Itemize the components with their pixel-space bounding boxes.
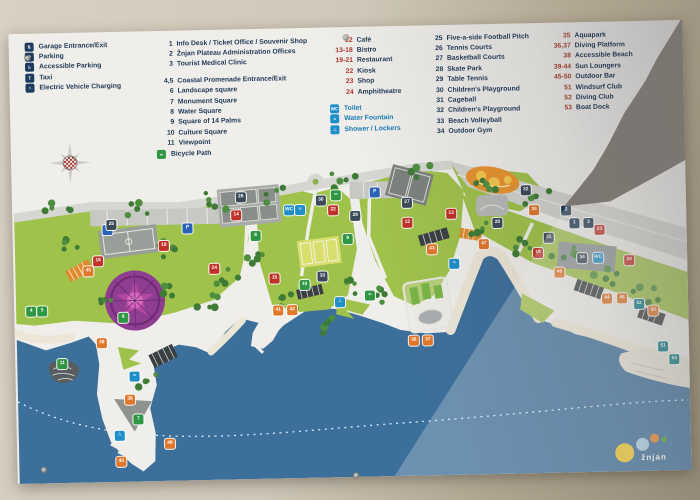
map-marker: 43 (427, 244, 437, 254)
legend-label: Water Fountain (344, 114, 393, 122)
map-marker: 39 (125, 395, 135, 405)
map-marker: 1 (569, 218, 579, 228)
map-marker: 35 (529, 205, 539, 215)
legend-number: 33 (426, 118, 444, 125)
legend-label: Accessible Beach (575, 52, 633, 60)
map-marker: ≈ (295, 205, 305, 215)
map-marker: 22 (328, 205, 338, 215)
legend-number: 11 (157, 140, 175, 147)
legend-label: Monument Square (178, 97, 237, 105)
map-marker: 38 (97, 338, 107, 348)
map-marker: 31 (544, 233, 554, 243)
map-marker: 25 (106, 220, 116, 230)
map-marker: 51 (658, 341, 668, 351)
map-marker: 49 (554, 268, 564, 278)
legend-item: 3Tourist Medical Clinic (155, 57, 308, 71)
legend-number: 28 (425, 66, 443, 73)
legend-label: Beach Volleyball (448, 117, 502, 125)
garage-icon: ⇅ (25, 42, 34, 51)
legend-column-beach: 35Aquapark36,37Diving Platform38Accessib… (542, 29, 634, 114)
legend-label: Kiosk (357, 67, 376, 74)
taxi-icon: T (25, 73, 34, 82)
map-marker: 37 (423, 335, 433, 345)
map-marker: 41 (273, 305, 283, 315)
map-marker: ∞ (331, 190, 341, 200)
map-marker: 3 (583, 218, 593, 228)
legend-label: Tourist Medical Clinic (177, 60, 247, 68)
legend-label: Café (356, 36, 371, 43)
legend-number: 36,37 (543, 42, 571, 50)
map-marker: 45 (83, 266, 93, 276)
map-marker: 12 (402, 218, 412, 228)
legend-label: Cageball (448, 96, 476, 104)
water-fountain-icon: ≈ (330, 115, 339, 124)
legend-label: Electric Vehicle Charging (39, 83, 121, 92)
map-marker: P (370, 187, 380, 197)
map-marker: 33 (317, 271, 327, 281)
map-marker: 53 (669, 354, 679, 364)
toilet-icon: WC (330, 104, 339, 113)
legend-label: Skate Park (447, 65, 482, 73)
screw (354, 473, 359, 478)
logo-dot-blue (669, 441, 673, 445)
legend-item: ∴Shower / Lockers (330, 123, 402, 135)
map-marker: 7 (133, 414, 143, 424)
logo-dot-yellow (615, 443, 634, 462)
legend-number: 3 (155, 61, 173, 68)
map-marker: ∴ (115, 431, 125, 441)
legend-number: 23 (329, 78, 353, 86)
legend-label: Windsurf Club (576, 83, 623, 91)
legend-number: 10 (156, 129, 174, 136)
legend-number: 27 (425, 55, 443, 62)
map-marker: 16 (93, 256, 103, 266)
legend-number: 4,5 (155, 78, 173, 85)
map-marker: 47 (479, 239, 489, 249)
logo-dot-lightblue (636, 438, 649, 451)
legend-number: 6 (156, 88, 174, 95)
legend-label: Taxi (39, 74, 52, 81)
map-marker: 36 (409, 336, 419, 346)
legend-label: Shower / Lockers (344, 125, 400, 133)
legend-number: 35 (542, 32, 570, 40)
map-marker: 32 (521, 185, 531, 195)
legend-label: Shop (357, 78, 374, 85)
legend-number: 12 (328, 37, 352, 45)
beach-volleyball-courts (297, 236, 342, 268)
legend-label: Children's Playground (448, 85, 520, 94)
legend-item: 24Amphitheatre (330, 86, 402, 98)
legend-label: Diving Club (576, 93, 614, 101)
legend-label: Landscape square (178, 87, 238, 95)
map-marker: 42 (287, 305, 297, 315)
legend-column-facilities: ⇅Garage Entrance/ExitPParking♿Accessible… (25, 40, 122, 94)
skate-park (476, 195, 508, 217)
map-marker: 20 (624, 255, 634, 265)
legend-column-food-amenities: 12Café13-18Bistro19-21Restaurant22Kiosk2… (328, 34, 402, 135)
legend-label: Square of 14 Palms (178, 118, 241, 126)
map-marker: 2 (561, 205, 571, 215)
legend-number: 32 (426, 107, 444, 114)
map-marker: 6 (118, 313, 128, 323)
map-marker: 19 (159, 241, 169, 251)
map-marker: 44 (602, 294, 612, 304)
znjan-logo: žnjan (615, 431, 696, 469)
bay-structures (403, 277, 454, 333)
legend-label: Sun Loungers (575, 62, 621, 70)
map-marker: ∴ (335, 297, 345, 307)
screw (343, 35, 348, 40)
legend-label: Children's Playground (448, 106, 520, 115)
shower-lockers-icon: ∴ (330, 125, 339, 134)
legend-label: Bistro (357, 46, 377, 53)
legend-number: 45-50 (543, 74, 571, 82)
map-marker: 29 (350, 211, 360, 221)
map-marker: 24 (209, 264, 219, 274)
legend-number: 2 (155, 51, 173, 58)
legend-label: Basketball Courts (447, 54, 505, 62)
legend-number: 9 (156, 119, 174, 126)
legend-label: Tennis Courts (447, 44, 492, 52)
legend-number: 24 (330, 89, 354, 97)
map-marker: 50 (648, 306, 658, 316)
legend-number: 25 (424, 35, 442, 42)
map-marker: 23 (594, 225, 604, 235)
map-marker: P (182, 223, 192, 233)
map-marker: 10 (300, 280, 310, 290)
legend-label: Bicycle Path (171, 149, 212, 157)
legend-item: 53Boat Dock (544, 102, 634, 114)
legend-label: Outdoor Gym (448, 127, 492, 135)
legend-number: 22 (329, 68, 353, 76)
map-marker: 8 (251, 231, 261, 241)
legend-number: 26 (425, 45, 443, 52)
ev-charging-icon: ⚡ (25, 84, 34, 93)
map-marker: 46 (617, 293, 627, 303)
map-marker: WC (284, 205, 294, 215)
legend-number: 13-18 (329, 47, 353, 55)
legend-number: 31 (426, 97, 444, 104)
map-marker: ≈ (129, 371, 139, 381)
map-marker: 27 (402, 198, 412, 208)
legend-item: ⚡Electric Vehicle Charging (25, 81, 121, 93)
legend-label: Water Square (178, 108, 222, 116)
legend-number: 29 (425, 76, 443, 83)
map-marker: 48 (165, 439, 175, 449)
legend-number: 30 (426, 87, 444, 94)
map-marker: 18 (533, 248, 543, 258)
park-information-sign: ⇅Garage Entrance/ExitPParking♿Accessible… (8, 20, 691, 484)
legend-number: 8 (156, 109, 174, 116)
legend-label: Diving Platform (575, 41, 625, 49)
legend-item: 34Outdoor Gym (426, 125, 531, 138)
map-marker: 26 (236, 192, 246, 202)
map-marker: 34 (577, 253, 587, 263)
legend-label: Table Tennis (447, 75, 488, 83)
map-marker: 30 (316, 195, 326, 205)
map-marker: 14 (231, 210, 241, 220)
map-marker: ∞ (365, 290, 375, 300)
legend-label: Viewpoint (179, 139, 211, 147)
screw (41, 467, 46, 472)
compass-rose (49, 141, 92, 184)
legend-column-places: 1Info Desk / Ticket Office / Souvenir Sh… (154, 36, 309, 159)
legend-label: Parking (39, 53, 64, 61)
legend-label: Outdoor Bar (575, 73, 615, 81)
legend-number: 1 (155, 40, 173, 47)
legend-number: 52 (544, 94, 572, 102)
legend-label: Amphitheatre (358, 88, 402, 96)
map-marker: 52 (634, 299, 644, 309)
screw (25, 56, 30, 61)
map-marker: 15 (269, 273, 279, 283)
map-marker: WC (593, 253, 603, 263)
legend-number: 53 (544, 105, 572, 113)
map-marker: 13 (446, 209, 456, 219)
logo-text: žnjan (641, 452, 667, 462)
map-marker: 4 (26, 307, 36, 317)
legend-label: Five-a-side Football Pitch (446, 33, 528, 42)
legend-number: 19-21 (329, 57, 353, 65)
legend-number: 51 (544, 84, 572, 92)
legend-label: Coastal Promenade Entrance/Exit (177, 75, 286, 84)
map-marker: 9 (343, 234, 353, 244)
bicycle-path-icon: ∞ (157, 149, 166, 158)
map-marker: 28 (492, 218, 502, 228)
legend-column-sports: 25Five-a-side Football Pitch26Tennis Cou… (424, 31, 530, 137)
legend-label: Aquapark (574, 31, 605, 39)
map-marker: 11 (57, 359, 67, 369)
legend-number: 38 (543, 53, 571, 61)
legend-label: Toilet (344, 105, 362, 112)
legend-number: 34 (426, 128, 444, 135)
accessible-parking-icon: ♿ (25, 63, 34, 72)
logo-dot-orange (650, 434, 659, 443)
legend-label: Culture Square (178, 128, 227, 136)
legend-number: 7 (156, 98, 174, 105)
legend-label: Restaurant (357, 57, 393, 65)
map-marker: 5 (37, 306, 47, 316)
legend-label: Boat Dock (576, 104, 610, 112)
legend-number: 39-44 (543, 63, 571, 71)
legend-label: Accessible Parking (39, 63, 101, 71)
logo-dot-green (661, 436, 667, 442)
legend-label: Garage Entrance/Exit (39, 42, 108, 50)
map-marker: 40 (116, 457, 126, 467)
map-marker: ≈ (449, 259, 459, 269)
